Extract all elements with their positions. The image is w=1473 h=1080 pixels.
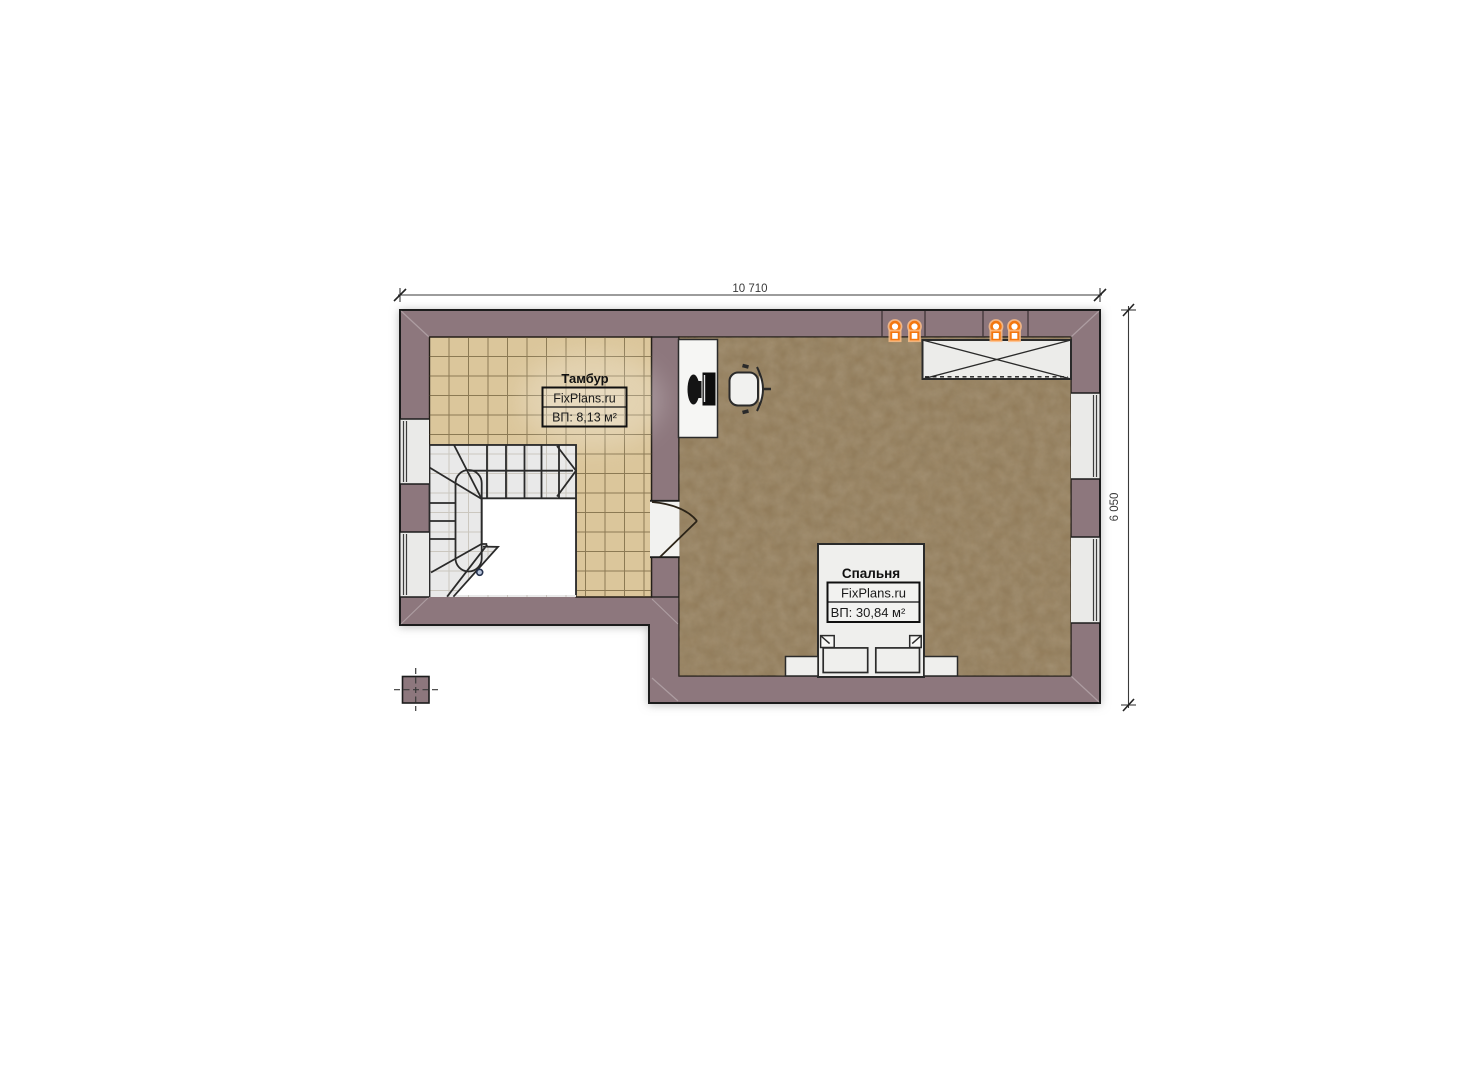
svg-text:Спальня: Спальня: [842, 566, 900, 581]
svg-text:10 710: 10 710: [732, 283, 767, 295]
svg-text:ВП: 30,84 м²: ВП: 30,84 м²: [831, 605, 906, 620]
svg-text:6 050: 6 050: [1109, 493, 1121, 522]
svg-text:ВП: 8,13 м²: ВП: 8,13 м²: [552, 411, 617, 425]
svg-text:FixPlans.ru: FixPlans.ru: [841, 586, 906, 601]
svg-text:FixPlans.ru: FixPlans.ru: [553, 392, 616, 406]
svg-text:Тамбур: Тамбур: [561, 371, 608, 386]
